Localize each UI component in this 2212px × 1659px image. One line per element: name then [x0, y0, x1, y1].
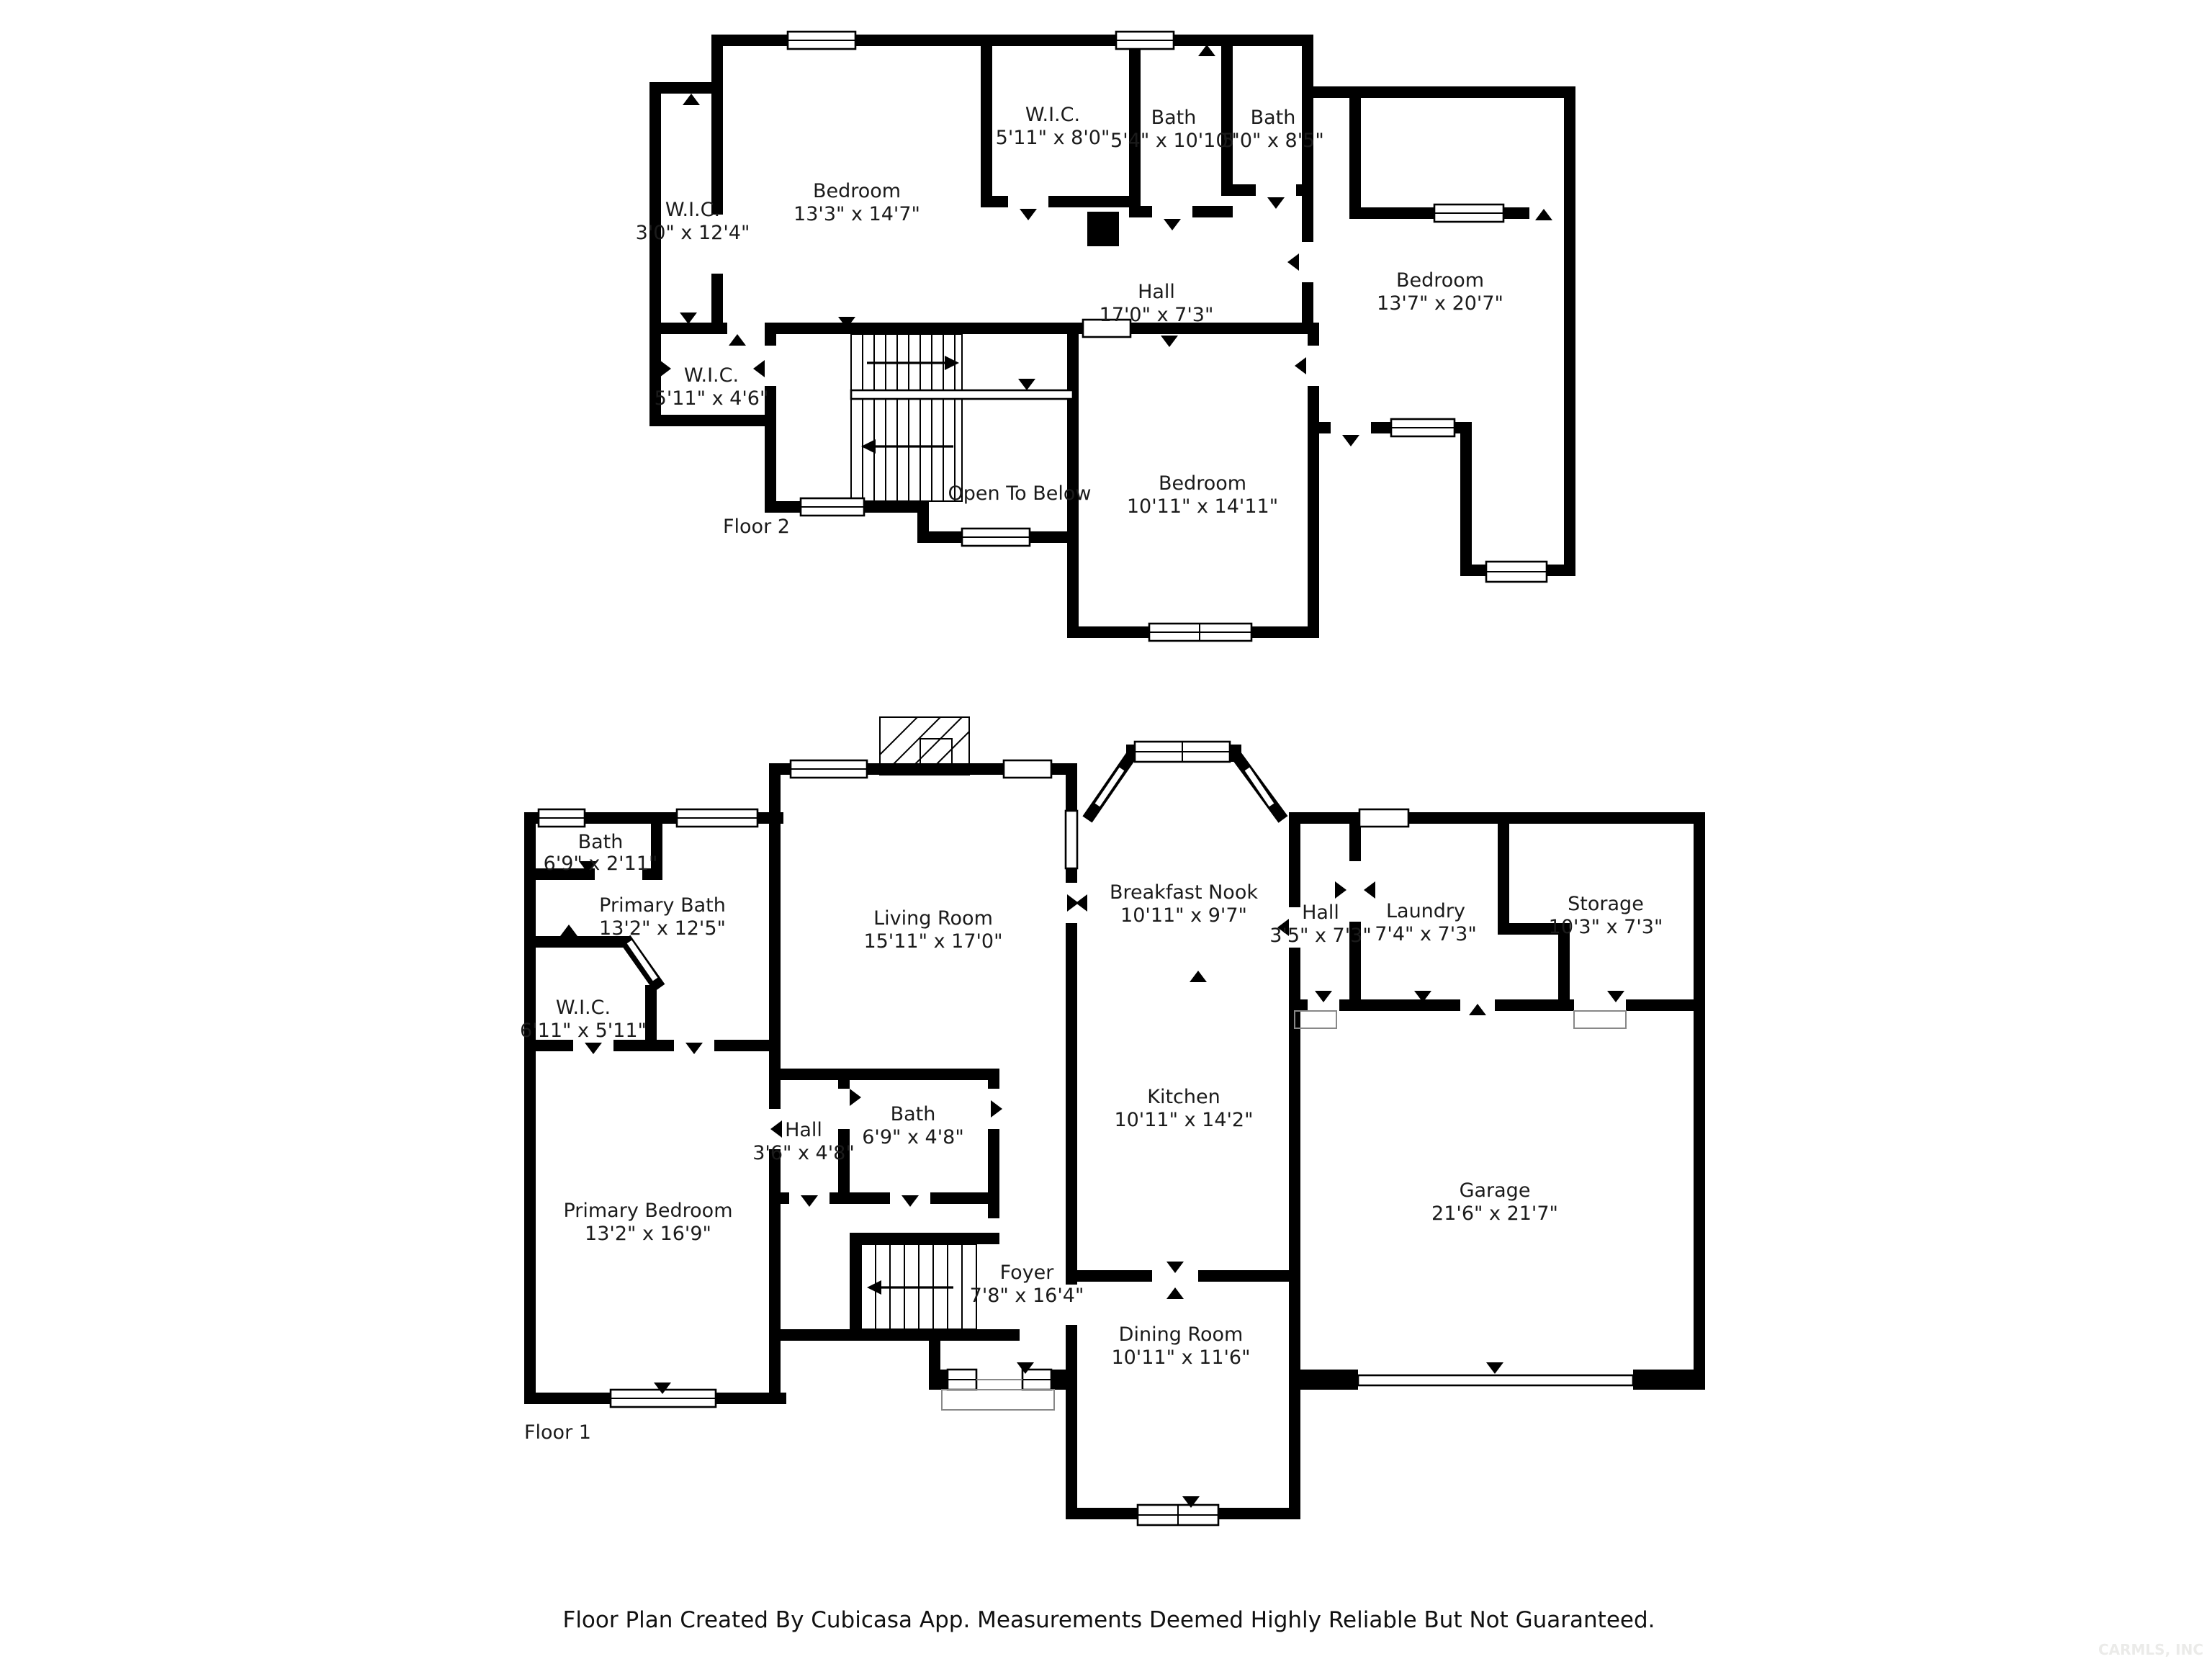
- window: [1391, 419, 1455, 436]
- floor-plan: W.I.C. 3'0" x 12'4" Bedroom 13'3" x 14'7…: [0, 0, 2212, 1659]
- room-label: Living Room: [873, 907, 993, 930]
- room-label: Hall: [1302, 902, 1339, 924]
- window: [1116, 32, 1174, 49]
- room-dims: 5'4" x 10'10": [1110, 130, 1237, 152]
- room-dims: 10'11" x 14'2": [1114, 1109, 1253, 1131]
- windows-floor-1: [539, 742, 1633, 1525]
- room-dims: 10'3" x 7'3": [1549, 916, 1663, 938]
- room-label: W.I.C.: [665, 199, 720, 221]
- room-label: Breakfast Nook: [1110, 881, 1258, 904]
- window: [677, 809, 757, 827]
- garage-step: [1574, 1011, 1626, 1028]
- window: [1486, 562, 1547, 582]
- room-dims: 5'11" x 8'0": [996, 127, 1110, 149]
- room-label: Laundry: [1386, 900, 1465, 922]
- porch-step: [942, 1390, 1054, 1410]
- room-label: Kitchen: [1147, 1086, 1220, 1108]
- window: [788, 32, 855, 49]
- window: [1359, 809, 1408, 827]
- room-label: Bath: [1151, 107, 1197, 129]
- room-dims: 3'6" x 4'8": [752, 1142, 855, 1164]
- room-label: Foyer: [1000, 1262, 1055, 1284]
- room-dims: 6'9" x 4'8": [862, 1126, 964, 1148]
- room-label: Bedroom: [1159, 472, 1246, 495]
- room-dims: 3'0" x 12'4": [636, 222, 750, 244]
- floor-1-label: Floor 1: [524, 1421, 591, 1444]
- room-dims: 13'2" x 12'5": [599, 917, 726, 940]
- room-dims: 3'5" x 7'3": [1269, 925, 1372, 947]
- window: [539, 809, 585, 827]
- open-to-below-label: Open To Below: [948, 482, 1092, 505]
- room-dims: 10'11" x 9'7": [1120, 904, 1247, 927]
- window: [1149, 624, 1251, 641]
- stairs-floor-2: [851, 334, 1073, 501]
- room-dims: 13'3" x 14'7": [793, 203, 920, 225]
- room-label: Bath: [891, 1103, 936, 1125]
- room-dims: 13'7" x 20'7": [1377, 292, 1503, 315]
- room-dims: 7'4" x 7'3": [1375, 923, 1477, 945]
- stairs-floor-1: [861, 1244, 976, 1329]
- room-dims: 7'8" x 16'4": [970, 1285, 1084, 1307]
- room-dims: 13'2" x 16'9": [585, 1223, 711, 1245]
- room-dims: 5'0" x 8'5": [1222, 130, 1324, 152]
- room-label: Bedroom: [1396, 269, 1484, 292]
- entry-door: [948, 1370, 976, 1390]
- room-label: Dining Room: [1119, 1323, 1244, 1346]
- window: [1004, 760, 1051, 778]
- window: [1066, 811, 1077, 868]
- stair-up-arrow: [945, 356, 959, 370]
- room-label: Primary Bedroom: [563, 1200, 732, 1222]
- room-label: Bath: [578, 831, 624, 853]
- room-dims: 10'11" x 14'11": [1127, 495, 1278, 518]
- stair-down-arrow: [867, 1280, 881, 1295]
- room-label: W.I.C.: [1025, 104, 1080, 126]
- room-dims: 5'11" x 4'6": [655, 387, 769, 410]
- room-label: Hall: [785, 1119, 822, 1141]
- room-label: Primary Bath: [599, 894, 726, 917]
- window: [801, 498, 864, 516]
- front-door: [1022, 1370, 1051, 1390]
- room-dims: 15'11" x 17'0": [863, 930, 1002, 953]
- room-dims: 17'0" x 7'3": [1100, 304, 1214, 326]
- room-dims: 6'11" x 5'11": [520, 1020, 647, 1042]
- room-dims: 6'9" x 2'11": [544, 853, 658, 875]
- room-dims: 21'6" x 21'7": [1431, 1202, 1558, 1225]
- room-label: Bedroom: [813, 180, 901, 202]
- garage-step: [1295, 1011, 1336, 1028]
- room-label: W.I.C.: [684, 364, 739, 387]
- window: [1135, 742, 1230, 762]
- room-labels-floor-1: Bath 6'9" x 2'11" Primary Bath 13'2" x 1…: [520, 831, 1663, 1444]
- room-dims: 10'11" x 11'6": [1111, 1346, 1250, 1369]
- room-label: Storage: [1568, 893, 1644, 915]
- floor-2-plan: W.I.C. 3'0" x 12'4" Bedroom 13'3" x 14'7…: [636, 32, 1575, 641]
- floor-1-plan: Bath 6'9" x 2'11" Primary Bath 13'2" x 1…: [520, 717, 1705, 1525]
- window: [1434, 204, 1503, 222]
- stair-landing-line: [851, 390, 1073, 399]
- room-label: Garage: [1460, 1179, 1531, 1202]
- footer-caption: Floor Plan Created By Cubicasa App. Meas…: [562, 1607, 1655, 1633]
- window: [1138, 1505, 1218, 1525]
- watermark: CARMLS, INC: [2098, 1641, 2203, 1658]
- room-label: Bath: [1251, 107, 1296, 129]
- window: [791, 760, 867, 778]
- floor-2-label: Floor 2: [723, 516, 790, 538]
- room-label: W.I.C.: [556, 997, 611, 1019]
- window: [962, 529, 1030, 546]
- garage-door: [1358, 1375, 1633, 1385]
- room-label: Hall: [1138, 281, 1175, 303]
